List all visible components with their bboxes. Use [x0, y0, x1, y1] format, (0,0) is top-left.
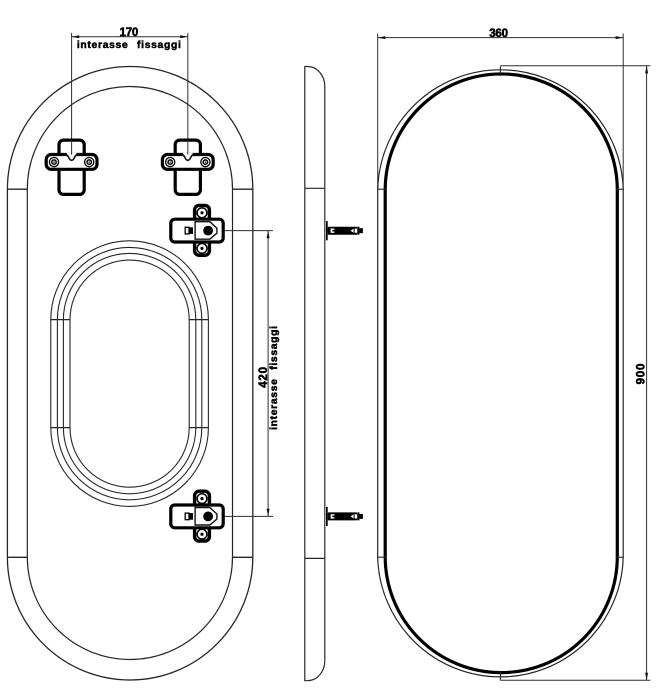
- svg-text:interasse fissaggi: interasse fissaggi: [269, 325, 280, 430]
- svg-text:360: 360: [489, 28, 508, 40]
- svg-text:interasse fissaggi: interasse fissaggi: [77, 40, 182, 51]
- svg-text:900: 900: [636, 363, 648, 385]
- svg-text:170: 170: [120, 27, 139, 39]
